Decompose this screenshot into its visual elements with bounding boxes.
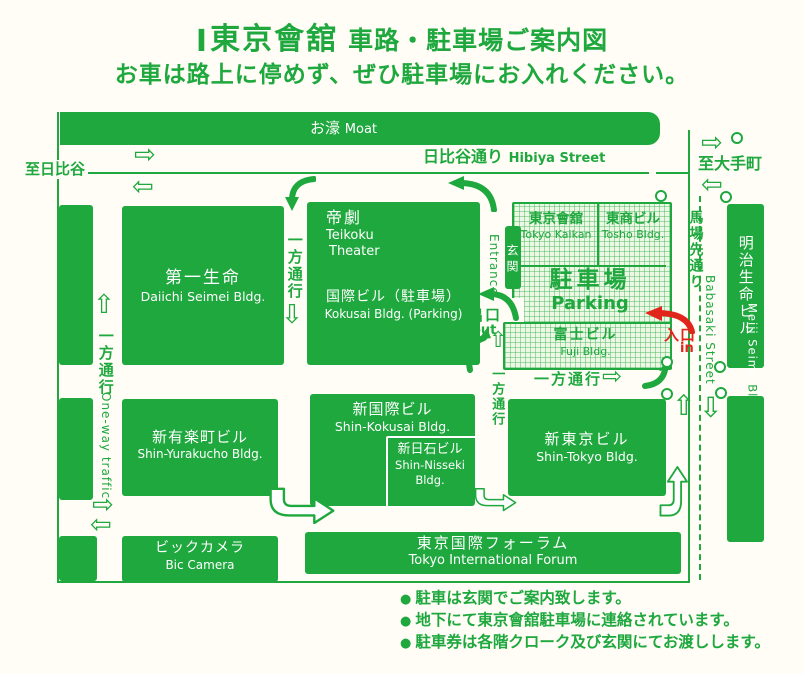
exit-street-oneway-label: 一方通行 [488, 366, 504, 428]
note-item: ●駐車は玄関でご案内致します。 [400, 588, 770, 610]
hibiya-street-label: 日比谷通り Hibiya Street [423, 147, 605, 167]
left-strip-2 [59, 398, 93, 500]
kokusai-bldg-label: 国際ビル（駐車場） Kokusai Bldg. (Parking) [309, 289, 478, 322]
teikoku-theater-label: 帝劇 Teikoku Theater [326, 208, 380, 261]
hibiya-eastbound-arrow-icon: ⇨ [134, 142, 156, 168]
bullet-icon: ● [400, 636, 411, 651]
parking-label-jp: 駐車場 [512, 266, 668, 295]
left-street-oneway-en-label: One-way traffic [98, 392, 113, 494]
notes-list: ●駐車は玄関でご案内致します。 ●地下にて東京會舘駐車場に連絡されています。 ●… [400, 588, 770, 654]
signal-dot [714, 361, 726, 373]
shin-nisseki-label: 新日石ビル Shin-Nisseki Bldg. [386, 442, 474, 487]
page-title: Ⅰ東京會舘車路・駐車場ご案内図 [0, 14, 804, 59]
bottom-street-west-arrow-icon: ⇦ [90, 512, 112, 538]
meiji-seimei-label-en: Meiji SeimeiBldg. [745, 296, 759, 426]
babasaki-up-arrow-icon: ⇧ [672, 392, 695, 420]
left-strip-3 [59, 536, 97, 581]
hibiya-westbound-arrow-icon: ⇦ [132, 174, 154, 200]
turn-right-arrow-small-icon [472, 486, 518, 512]
bic-camera-label: ビックカメラ Bic Camera [122, 540, 278, 573]
exit-street-up-arrow-icon: ⇧ [489, 330, 507, 352]
signal-dot [661, 356, 673, 368]
bullet-icon: ● [400, 592, 411, 607]
south-oneway-label: 一方通行 [534, 370, 602, 389]
left-strip-1 [59, 205, 93, 365]
tokyo-kaikan-logo-icon: Ⅰ [196, 24, 207, 59]
to-hibiya-label: 至日比谷 [22, 160, 88, 179]
signal-dot [655, 190, 667, 202]
daiichi-seimei-label: 第一生命 Daiichi Seimei Bldg. [122, 268, 284, 305]
signal-dot [731, 132, 743, 144]
teikoku-street-down-arrow-icon: ⇩ [281, 302, 303, 328]
left-street-oneway-label: 一方通行 [96, 326, 115, 398]
title-main: 東京會舘 [210, 22, 338, 57]
tokyo-kaikan-label: 東京會舘 Tokyo Kaikan [514, 211, 598, 242]
south-oneway-arrow-icon: ⇨ [602, 364, 622, 388]
signal-dot [715, 387, 727, 399]
page-subtitle: お車は路上に停めず、ぜひ駐車場にお入れください。 [0, 55, 804, 89]
genkan-tab: 玄関 [505, 226, 521, 289]
bullet-icon: ● [400, 614, 411, 629]
moat-label: お濠 Moat [310, 119, 377, 138]
teikoku-street-oneway-label: 一方通行 [285, 226, 304, 306]
signal-dot [661, 388, 673, 400]
title-suffix: 車路・駐車場ご案内図 [348, 26, 608, 55]
hibiya-centerline-dash [656, 172, 688, 174]
exit-turn-arrow-icon [476, 284, 520, 322]
shin-tokyo-label: 新東京ビル Shin-Tokyo Bldg. [508, 430, 666, 464]
shin-kokusai-label: 新国際ビル Shin-Kokusai Bldg. [310, 400, 475, 434]
note-item: ●駐車券は各階クローク及び玄関にてお渡しします。 [400, 632, 770, 654]
turn-right-arrow-icon [264, 486, 338, 524]
in-label-en: in [680, 341, 694, 357]
turn-up-arrow-icon [658, 464, 688, 520]
note-item: ●地下にて東京會舘駐車場に連絡されています。 [400, 610, 770, 632]
shin-yurakucho-label: 新有楽町ビル Shin-Yurakucho Bldg. [122, 428, 278, 462]
tokyo-forum-label: 東京国際フォーラム Tokyo International Forum [305, 534, 681, 569]
left-street-up-arrow-icon: ⇧ [93, 292, 115, 318]
tosho-bldg-label: 東商ビル Tosho Bldg. [598, 211, 668, 242]
signal-dot [720, 191, 732, 203]
otemachi-eastbound-arrow-icon: ⇨ [701, 130, 723, 156]
babasaki-street-label-jp: 馬場先通り [686, 194, 704, 306]
